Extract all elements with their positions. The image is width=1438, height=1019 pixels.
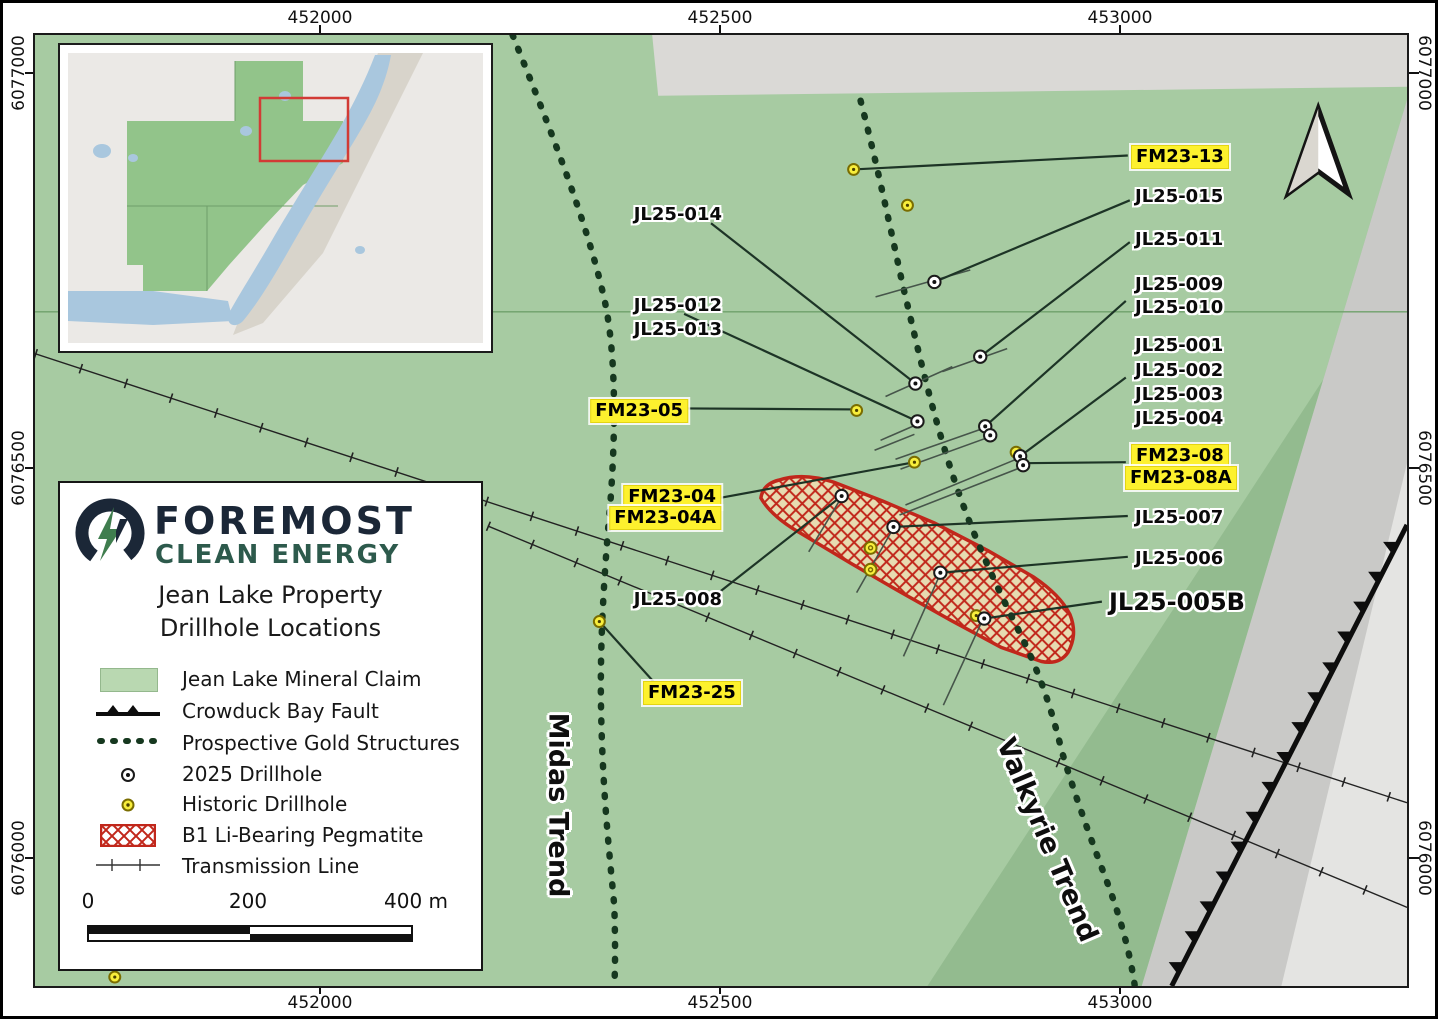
label-jl25-005b: JL25-005B bbox=[1109, 589, 1245, 615]
axis-bottom-452000: 452000 bbox=[288, 993, 353, 1013]
label-jl25-012: JL25-012 bbox=[634, 295, 722, 317]
logo-name-bottom: CLEAN ENERGY bbox=[155, 540, 400, 570]
label-jl25-009: JL25-009 bbox=[1135, 274, 1223, 296]
label-jl25-015: JL25-015 bbox=[1135, 186, 1223, 208]
scale-label-0: 0 bbox=[82, 889, 95, 913]
map-title-line1: Jean Lake Property bbox=[60, 581, 481, 609]
legend-item-pegmatite: B1 Li-Bearing Pegmatite bbox=[182, 824, 423, 846]
drillhole-historic-icon bbox=[118, 795, 138, 815]
label-fm23-25: FM23-25 bbox=[643, 681, 741, 705]
legend-item-fault: Crowduck Bay Fault bbox=[182, 700, 379, 722]
claim-swatch-icon bbox=[100, 668, 158, 692]
axis-bottom-452500: 452500 bbox=[688, 993, 753, 1013]
map-figure: 452000 452500 453000 452000 452500 45300… bbox=[0, 0, 1438, 1019]
label-jl25-008: JL25-008 bbox=[634, 589, 722, 611]
label-jl25-002: JL25-002 bbox=[1135, 360, 1223, 382]
label-jl25-011: JL25-011 bbox=[1135, 229, 1223, 251]
legend-item-gold-structures: Prospective Gold Structures bbox=[182, 732, 460, 754]
terrain-top-gray bbox=[652, 35, 1407, 96]
label-fm23-05: FM23-05 bbox=[590, 399, 688, 423]
label-jl25-001: JL25-001 bbox=[1135, 335, 1223, 357]
label-fm23-04a: FM23-04A bbox=[609, 506, 721, 530]
label-jl25-007: JL25-007 bbox=[1135, 507, 1223, 529]
inset-overview-map bbox=[58, 43, 493, 353]
pegmatite-swatch-icon bbox=[100, 824, 156, 847]
label-jl25-014: JL25-014 bbox=[634, 204, 722, 226]
map-title-line2: Drillhole Locations bbox=[60, 614, 481, 642]
dotted-line-icon bbox=[96, 734, 160, 748]
scale-label-200: 200 bbox=[229, 889, 267, 913]
label-jl25-003: JL25-003 bbox=[1135, 384, 1223, 406]
foremost-logo-icon bbox=[74, 497, 146, 569]
label-fm23-08a: FM23-08A bbox=[1125, 466, 1237, 490]
label-jl25-010: JL25-010 bbox=[1135, 297, 1223, 319]
label-jl25-013: JL25-013 bbox=[634, 319, 722, 341]
legend-panel: FOREMOST CLEAN ENERGY Jean Lake Property… bbox=[58, 481, 483, 971]
label-jl25-004: JL25-004 bbox=[1135, 408, 1223, 430]
legend-item-claim: Jean Lake Mineral Claim bbox=[182, 668, 421, 690]
label-fm23-13: FM23-13 bbox=[1131, 145, 1229, 169]
label-fm23-08: FM23-08 bbox=[1131, 444, 1229, 468]
legend-item-2025-drillhole: 2025 Drillhole bbox=[182, 763, 322, 785]
logo-name-top: FOREMOST bbox=[154, 499, 415, 543]
legend-item-transmission: Transmission Line bbox=[182, 855, 359, 877]
scale-bar bbox=[87, 925, 413, 942]
inset-graphics bbox=[68, 53, 483, 343]
legend-item-historic-drillhole: Historic Drillhole bbox=[182, 793, 347, 815]
transmission-line-icon bbox=[96, 858, 160, 872]
drillhole-2025-icon bbox=[118, 765, 138, 785]
fault-line-icon bbox=[96, 701, 160, 719]
axis-bottom-453000: 453000 bbox=[1088, 993, 1153, 1013]
scale-label-400m: 400 m bbox=[384, 889, 448, 913]
label-jl25-006: JL25-006 bbox=[1135, 548, 1223, 570]
midas-trend-label: Midas Trend bbox=[543, 713, 574, 898]
